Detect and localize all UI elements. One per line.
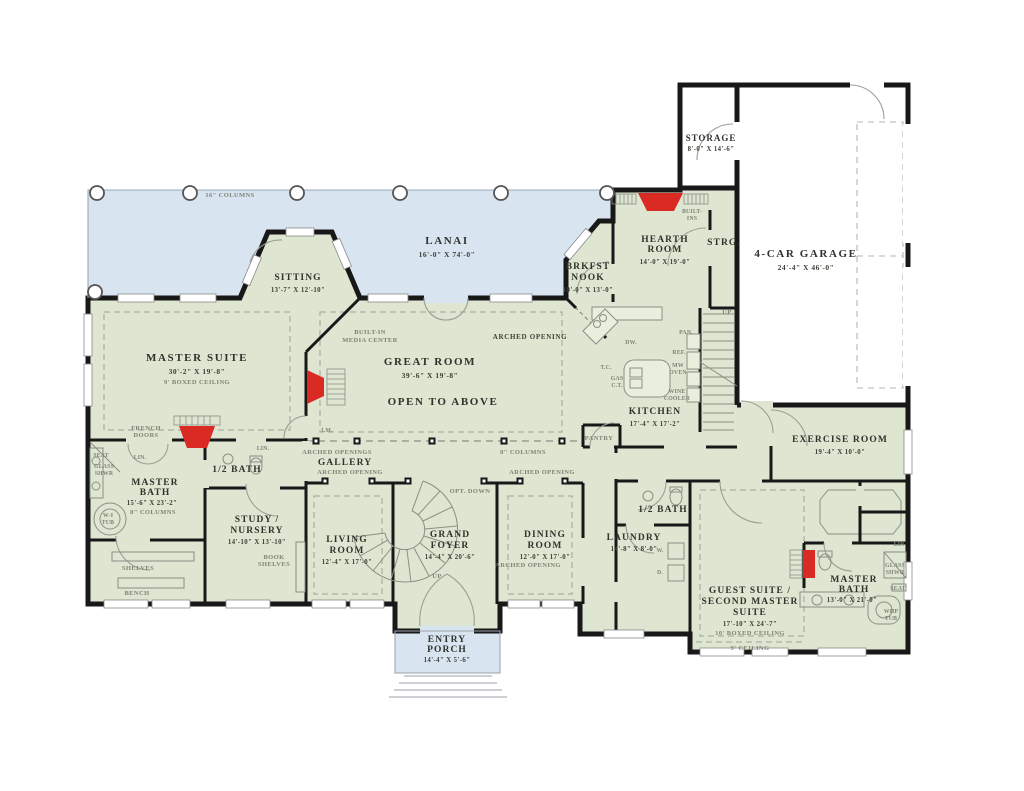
room-label-half-bath-left: 1/2 BATH [212, 465, 262, 475]
svg-text:SUITE: SUITE [733, 608, 767, 618]
room-dims-kitchen: 17'-4" X 17'-2" [630, 421, 681, 428]
room-label-laundry: LAUNDRY [607, 533, 662, 543]
note-pantry: PANTRY [585, 435, 614, 442]
note-lin-left: LIN. [134, 455, 147, 461]
garage-door-dashes [857, 122, 903, 388]
room-label-grand-foyer: GRAND [430, 530, 470, 540]
room-dims-sitting: 13'-7" X 12'-10" [271, 287, 325, 294]
note-lin-halfbath: LIN. [257, 446, 270, 452]
room-dims-dining: 12'-0" X 17'-0" [520, 554, 571, 561]
room-label-great-room: GREAT ROOM [384, 356, 476, 368]
svg-text:TUB: TUB [102, 520, 115, 526]
room-label-sitting: SITTING [274, 273, 321, 283]
room-note-guest-suite: 10' BOXED CEILING [715, 630, 785, 637]
floor-plan-drawing: STORAGE 8'-0" X 14'-6" 4-CAR GARAGE 24'-… [0, 0, 1024, 791]
svg-text:ROOM: ROOM [527, 541, 562, 551]
column-icon [290, 186, 304, 200]
room-label-living: LIVING [326, 535, 367, 545]
note-built-in-media: BUILT-IN [354, 329, 386, 336]
column-icon [393, 186, 407, 200]
note-dryer: D. [657, 570, 663, 576]
note-seat-left: SEAT [93, 453, 109, 459]
note-french-doors: FRENCH [131, 425, 161, 432]
svg-text:BATH: BATH [140, 488, 171, 498]
room-dims-brkfst: 10'-0" X 13'-0" [563, 287, 614, 294]
room-label-strg: STRG. [707, 238, 741, 248]
column-icon [600, 186, 614, 200]
svg-text:COOLER: COOLER [664, 396, 691, 402]
note-im: I.M. [321, 428, 333, 434]
note-dw: DW. [625, 340, 637, 346]
note-wi-tub: W-I [103, 513, 114, 519]
note-ref: REF. [672, 350, 686, 356]
svg-text:MEDIA CENTER: MEDIA CENTER [342, 337, 398, 344]
floor-plan-sheet: STORAGE 8'-0" X 14'-6" 4-CAR GARAGE 24'-… [0, 0, 1024, 791]
svg-text:FOYER: FOYER [431, 541, 470, 551]
svg-text:SECOND MASTER: SECOND MASTER [702, 597, 799, 607]
svg-text:PORCH: PORCH [427, 645, 467, 655]
note-built-ins: BUILT- [682, 209, 702, 215]
column-icon [90, 186, 104, 200]
note-lin-right: LIN. [894, 542, 907, 548]
note-8in-columns-gallery: 8" COLUMNS [500, 449, 546, 456]
svg-text:NURSERY: NURSERY [230, 526, 283, 536]
room-dims-master-bath-left: 15'-6" X 23'-2" [127, 500, 178, 507]
note-shelves: SHELVES [122, 565, 154, 572]
note-wine-cooler: WINE [669, 389, 686, 395]
room-label-lanai: LANAI [425, 235, 468, 247]
room-label-exercise: EXERCISE ROOM [792, 435, 888, 445]
note-arched-openings: ARCHED OPENINGS [302, 449, 372, 456]
svg-text:INS: INS [687, 216, 697, 222]
room-label-gallery: GALLERY [318, 458, 372, 468]
room-label-storage: STORAGE [686, 133, 737, 143]
room-dims-storage: 8'-0" X 14'-6" [688, 146, 735, 153]
note-gas-ct: GAS [611, 376, 624, 382]
room-label-study: STUDY / [235, 515, 280, 525]
room-dims-master-bath-right: 13'-0" X 21'-0" [827, 597, 878, 604]
column-icon [494, 186, 508, 200]
svg-text:ROOM: ROOM [329, 546, 364, 556]
room-dims-laundry: 14'-8" X 8'-0" [611, 546, 658, 553]
note-washer: W. [656, 548, 663, 554]
room-dims-great-room: 39'-6" X 19'-8" [402, 371, 459, 380]
column-icon [88, 285, 102, 299]
note-tc: T.C. [600, 365, 612, 371]
room-label-master-bath-right: MASTER [830, 575, 877, 585]
svg-text:SHWR: SHWR [886, 570, 905, 576]
svg-text:SHELVES: SHELVES [258, 561, 290, 568]
note-bench: BENCH [124, 590, 149, 597]
room-label-entry-porch: ENTRY [428, 635, 466, 645]
note-mw-oven: MW [672, 363, 684, 369]
note-arched-opening-living: ARCHED OPENING [317, 469, 383, 476]
room-dims-exercise: 19'-4" X 10'-0" [815, 449, 866, 456]
room-dims-study: 14'-10" X 13'-10" [228, 539, 286, 546]
svg-text:DOORS: DOORS [133, 432, 158, 439]
note-pan: PAN. [679, 330, 693, 336]
note-book-shelves: BOOK [263, 554, 284, 561]
svg-text:SHWR: SHWR [95, 471, 114, 477]
svg-text:NOOK: NOOK [571, 273, 604, 283]
note-seat-right: SEAT [890, 586, 906, 592]
room-dims-entry-porch: 14'-4" X 5'-6" [424, 657, 471, 664]
column-icon [183, 186, 197, 200]
note-up-spiral: UP [432, 573, 441, 580]
note-whp-tub: WHP [884, 609, 899, 615]
room-label-master-bath-left: MASTER [131, 478, 178, 488]
note-8in-columns-bath: 8" COLUMNS [130, 509, 176, 516]
room-label-half-bath-right: 1/2 BATH [638, 505, 688, 515]
room-label-master-suite: MASTER SUITE [146, 352, 248, 364]
note-16in-columns: 16" COLUMNS [205, 192, 254, 199]
note-up-kitchen: UP [722, 309, 731, 316]
room-label-guest-suite: GUEST SUITE / [709, 586, 791, 596]
room-label-dining: DINING [524, 530, 566, 540]
note-arched-opening-hall: ARCHED OPENING [495, 562, 561, 569]
note-arched-opening-great: ARCHED OPENING [493, 333, 568, 341]
room-note-open-to-above: OPEN TO ABOVE [388, 396, 499, 408]
room-dims-master-suite: 30'-2" X 19'-8" [169, 367, 226, 376]
room-dims-garage: 24'-4" X 46'-0" [778, 263, 835, 272]
svg-text:BATH: BATH [839, 585, 870, 595]
room-dims-guest-suite: 17'-10" X 24'-7" [723, 621, 777, 628]
svg-text:TUB: TUB [885, 616, 898, 622]
room-dims-living: 12'-4" X 17'-0" [322, 559, 373, 566]
room-label-hearth: HEARTH [641, 235, 688, 245]
note-glass-shwr-right: GLASS [885, 563, 905, 569]
room-dims-lanai: 16'-0" X 74'-0" [419, 250, 476, 259]
note-9ft-ceiling: 9' CEILING [731, 645, 770, 652]
room-note-master-suite: 9' BOXED CEILING [164, 379, 230, 386]
svg-text:ROOM: ROOM [647, 245, 682, 255]
note-glass-shwr-left: GLASS [94, 464, 114, 470]
svg-text:C.T.: C.T. [611, 383, 623, 389]
room-label-brkfst: BRKFST [566, 262, 611, 272]
room-dims-hearth: 14'-0" X 19'-0" [640, 259, 691, 266]
room-label-garage: 4-CAR GARAGE [754, 248, 857, 260]
room-dims-grand-foyer: 14'-4" X 20'-6" [425, 554, 476, 561]
svg-text:OVEN: OVEN [669, 370, 687, 376]
note-arched-opening-dining: ARCHED OPENING [509, 469, 575, 476]
room-label-kitchen: KITCHEN [629, 407, 682, 417]
guest-suite-fireplace [803, 550, 815, 578]
note-opt-down: OPT. DOWN [450, 488, 491, 495]
